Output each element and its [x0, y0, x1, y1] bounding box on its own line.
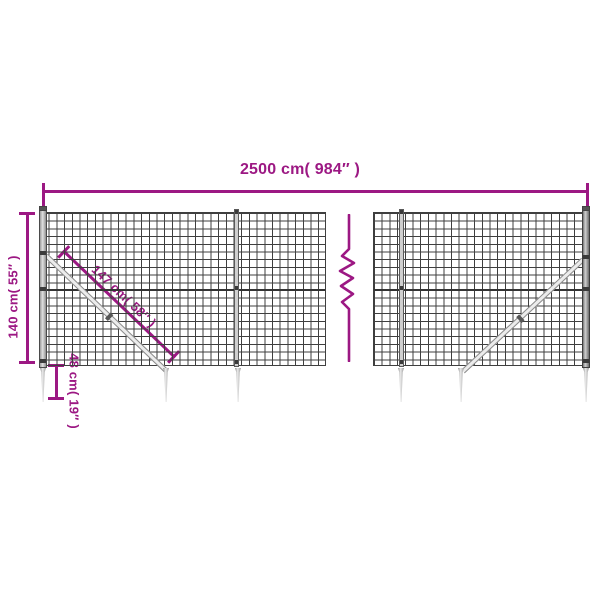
break-symbol-icon	[334, 214, 364, 362]
height-dimension-line	[26, 213, 29, 363]
post-clip	[400, 286, 403, 290]
fence-mesh-panel-right	[373, 212, 588, 366]
brace-clip	[105, 312, 113, 321]
height-dimension-tick-bottom	[19, 361, 35, 364]
height-dimension-label: 140 cm( 55″ )	[6, 255, 21, 338]
post-cap	[582, 206, 590, 211]
right-end-post	[582, 206, 590, 368]
total-width-dimension-tick-left	[42, 183, 45, 207]
height-dimension-tick-top	[19, 212, 35, 215]
left-end-post	[39, 206, 47, 368]
anchor-depth-dimension-tick-bottom	[48, 397, 64, 400]
anchor-depth-dimension-line	[55, 365, 58, 400]
ground-spike	[234, 368, 242, 402]
post-clip	[40, 251, 46, 255]
post-clip	[400, 360, 403, 364]
post-clip	[235, 286, 238, 290]
post-clip	[583, 287, 589, 291]
total-width-dimension-line	[43, 190, 588, 193]
post-clip	[583, 359, 589, 363]
post-clip	[235, 360, 238, 364]
total-width-dimension-tick-right	[586, 183, 589, 207]
post-clip	[400, 210, 403, 214]
fence-dimension-diagram: 2500 cm( 984″ ) 140 cm( 55″ ) 48 cm( 19″…	[0, 0, 600, 600]
post-clip	[235, 210, 238, 214]
ground-spike	[582, 368, 590, 402]
total-width-dimension-label: 2500 cm( 984″ )	[240, 161, 360, 179]
post-clip	[583, 255, 589, 259]
post-cap	[39, 206, 47, 211]
post-clip	[40, 287, 46, 291]
post-clip	[40, 359, 46, 363]
ground-spike	[162, 368, 170, 402]
mesh-middle-wire	[374, 289, 587, 291]
ground-spike	[397, 368, 405, 402]
intermediate-post-2	[399, 209, 404, 367]
intermediate-post-1	[234, 209, 239, 367]
ground-spike	[39, 368, 47, 402]
